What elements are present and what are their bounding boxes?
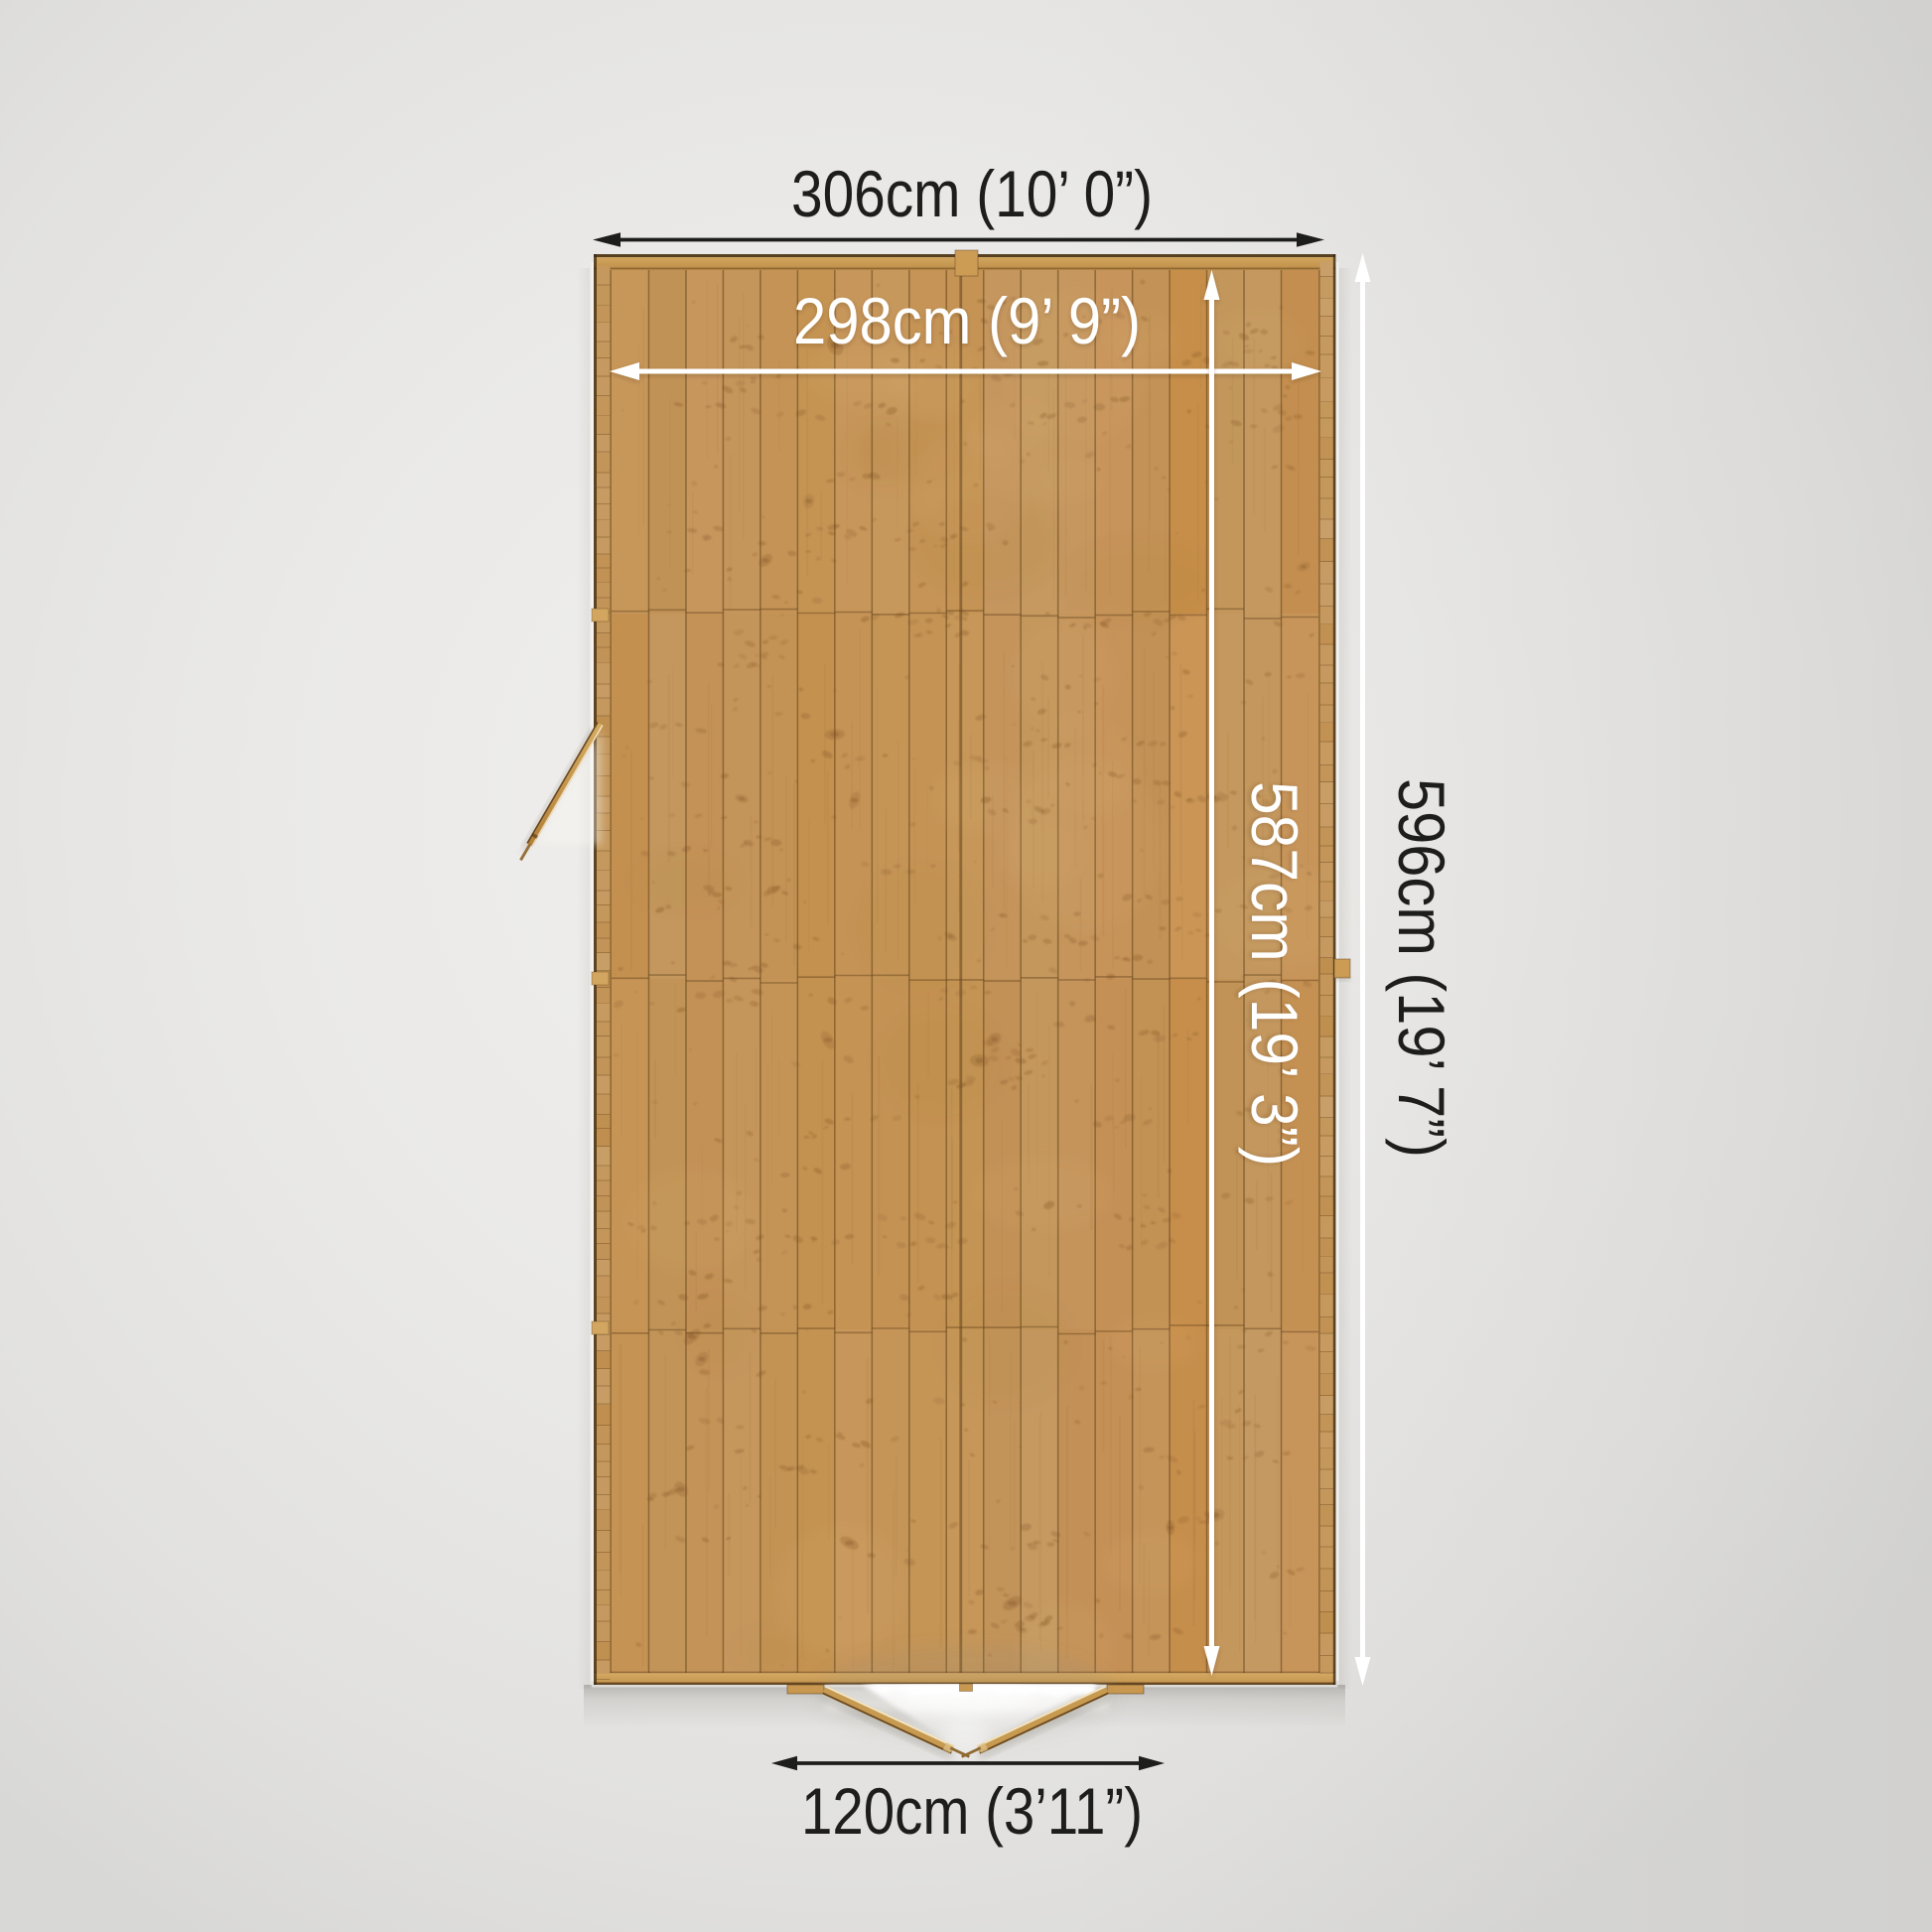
svg-text:306cm (10’ 0”): 306cm (10’ 0”) xyxy=(791,158,1153,230)
svg-text:120cm (3’11”): 120cm (3’11”) xyxy=(801,1775,1143,1848)
svg-text:298cm (9’ 9”): 298cm (9’ 9”) xyxy=(793,285,1141,357)
svg-text:587cm (19’ 3”): 587cm (19’ 3”) xyxy=(1238,781,1311,1167)
svg-text:596cm (19’ 7”): 596cm (19’ 7”) xyxy=(1385,778,1457,1158)
